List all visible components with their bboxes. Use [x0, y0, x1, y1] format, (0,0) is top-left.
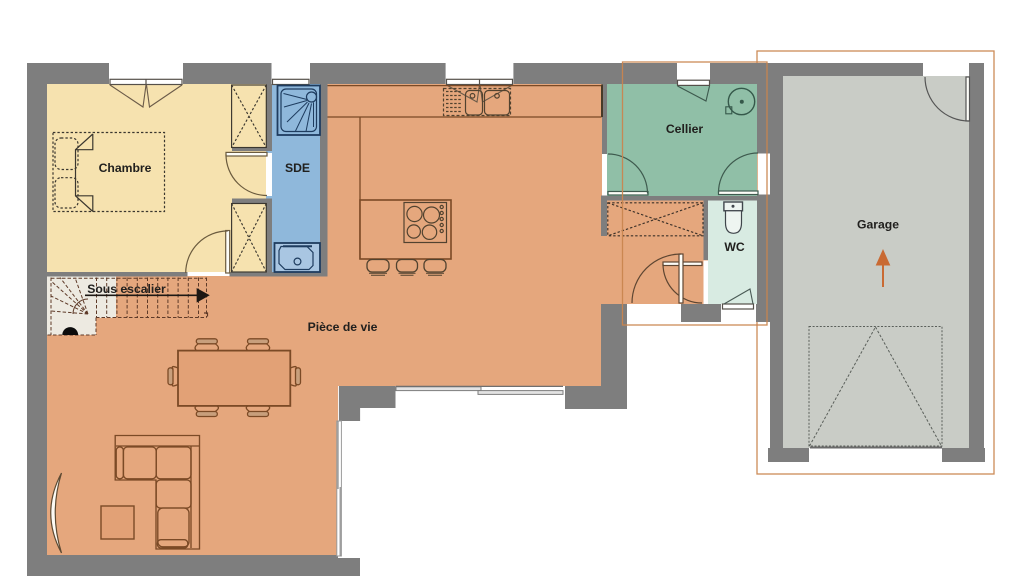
svg-text:Sous escalier: Sous escalier	[87, 282, 166, 296]
svg-text:SDE: SDE	[285, 161, 310, 175]
svg-text:Cellier: Cellier	[666, 122, 704, 136]
svg-text:WC: WC	[724, 240, 745, 254]
svg-text:Garage: Garage	[857, 218, 899, 232]
svg-text:Chambre: Chambre	[99, 161, 152, 175]
svg-text:Pièce de vie: Pièce de vie	[308, 320, 378, 334]
